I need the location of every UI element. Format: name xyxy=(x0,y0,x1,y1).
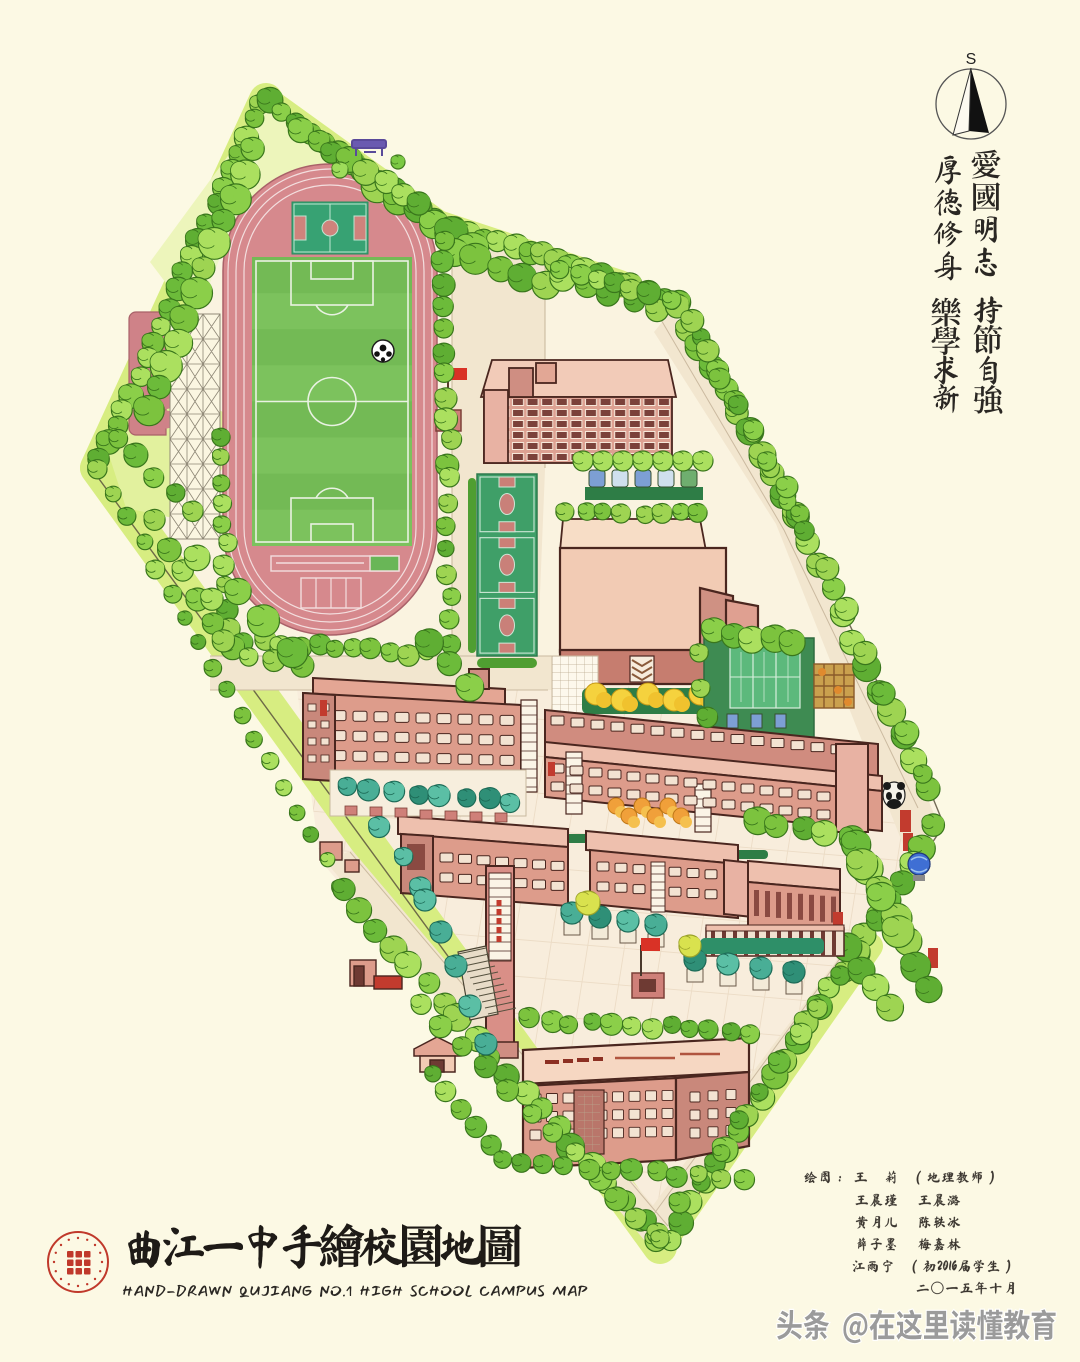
svg-text:S: S xyxy=(966,51,977,68)
